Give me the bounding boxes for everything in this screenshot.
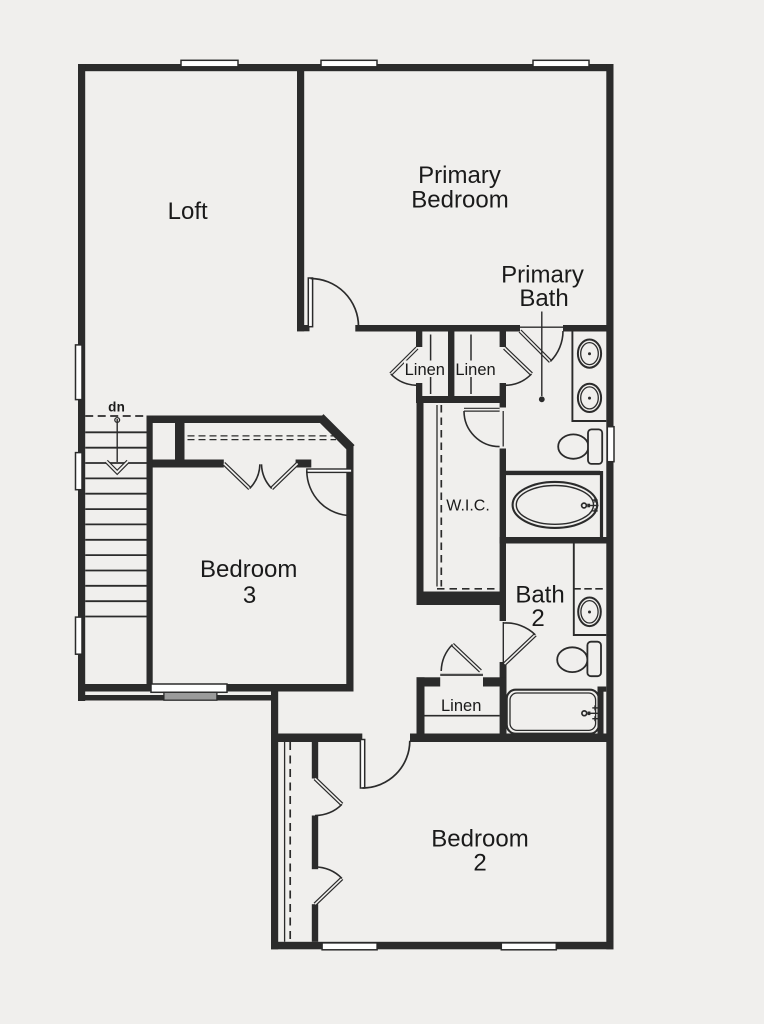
svg-text:Primary: Primary [418,162,501,189]
svg-text:3: 3 [243,582,256,609]
svg-text:Linen: Linen [455,361,495,379]
svg-text:Loft: Loft [168,198,208,225]
svg-text:2: 2 [531,605,544,632]
svg-text:W.I.C.: W.I.C. [446,498,490,515]
svg-text:Bath: Bath [519,285,568,312]
svg-text:Bedroom: Bedroom [200,556,297,583]
svg-text:Linen: Linen [441,697,481,715]
svg-text:Linen: Linen [405,361,445,379]
svg-text:Bedroom: Bedroom [411,187,508,214]
svg-text:dn: dn [108,400,125,415]
svg-text:2: 2 [473,850,486,877]
